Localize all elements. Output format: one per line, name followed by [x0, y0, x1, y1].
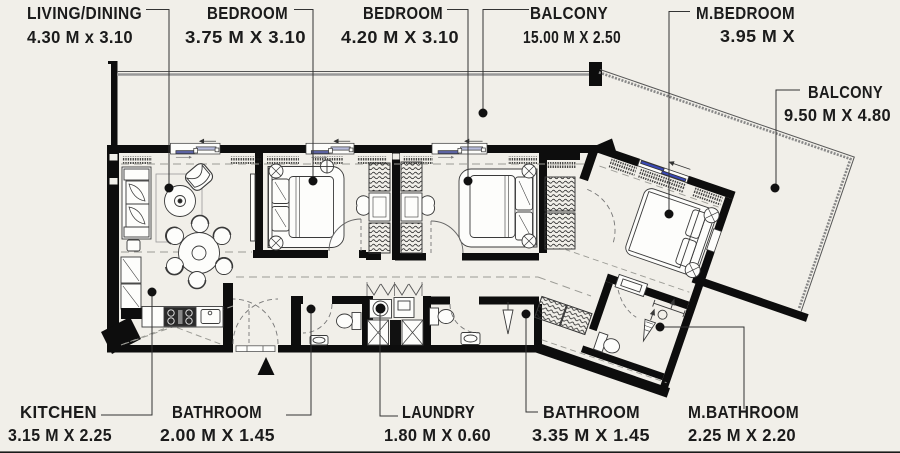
svg-text:15.00 M X 2.50: 15.00 M X 2.50: [523, 27, 621, 47]
svg-text:BATHROOM: BATHROOM: [172, 402, 262, 422]
svg-text:LAUNDRY: LAUNDRY: [402, 402, 475, 422]
svg-text:3.15 M X 2.25: 3.15 M X 2.25: [8, 425, 112, 445]
svg-text:3.75 M X 3.10: 3.75 M X 3.10: [185, 27, 306, 47]
svg-text:BEDROOM: BEDROOM: [363, 3, 443, 23]
svg-text:3.95 M X: 3.95 M X: [720, 26, 795, 46]
svg-text:BATHROOM: BATHROOM: [543, 402, 640, 422]
svg-text:4.20 M X 3.10: 4.20 M X 3.10: [341, 27, 459, 47]
svg-text:BALCONY: BALCONY: [530, 3, 608, 23]
svg-text:2.25 M X 2.20: 2.25 M X 2.20: [688, 425, 796, 445]
svg-text:LIVING/DINING: LIVING/DINING: [27, 3, 142, 23]
svg-text:2.00 M X 1.45: 2.00 M X 1.45: [160, 425, 275, 445]
svg-text:BALCONY: BALCONY: [808, 82, 883, 102]
svg-text:3.35 M X 1.45: 3.35 M X 1.45: [532, 425, 650, 445]
svg-text:1.80 M X 0.60: 1.80 M X 0.60: [384, 425, 491, 445]
svg-text:4.30 M x 3.10: 4.30 M x 3.10: [27, 27, 133, 47]
svg-text:9.50 M X 4.80: 9.50 M X 4.80: [784, 105, 891, 125]
svg-text:M.BEDROOM: M.BEDROOM: [696, 3, 795, 23]
svg-text:BEDROOM: BEDROOM: [207, 3, 288, 23]
svg-text:KITCHEN: KITCHEN: [20, 402, 97, 422]
